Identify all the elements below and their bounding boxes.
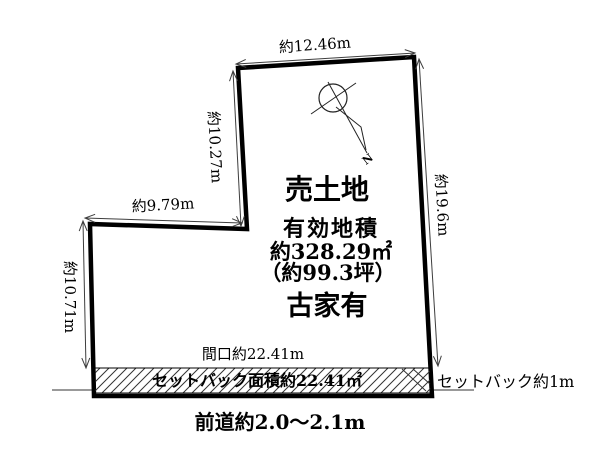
land-plot-diagram: N 約12.46m 約10.27m 約9.79m 約10.71m 約19.6m … xyxy=(0,0,600,475)
dimension-label-upper-left: 約10.27m xyxy=(204,110,226,183)
plot-diagram-canvas: N 約12.46m 約10.27m 約9.79m 約10.71m 約19.6m … xyxy=(0,0,600,475)
setback-side-label: セットバック約1m xyxy=(437,372,574,391)
dimension-line-left xyxy=(83,221,86,368)
front-road-label: 前道約2.0〜2.1m xyxy=(195,410,366,434)
dimension-label-step: 約9.79m xyxy=(131,194,194,215)
parcel-title: 売土地 xyxy=(285,173,369,206)
parcel-note: 古家有 xyxy=(287,290,368,322)
parcel-area-tsubo: （約99.3坪） xyxy=(260,260,395,285)
dimension-label-left: 約10.71m xyxy=(61,261,79,333)
dimension-label-right: 約19.6m xyxy=(431,173,452,236)
dimension-line-step xyxy=(85,218,242,223)
setback-strip-label: セットバック面積約22.41㎡ xyxy=(152,371,362,390)
frontage-label: 間口約22.41m xyxy=(202,345,304,363)
dimension-label-top: 約12.46m xyxy=(278,34,351,57)
